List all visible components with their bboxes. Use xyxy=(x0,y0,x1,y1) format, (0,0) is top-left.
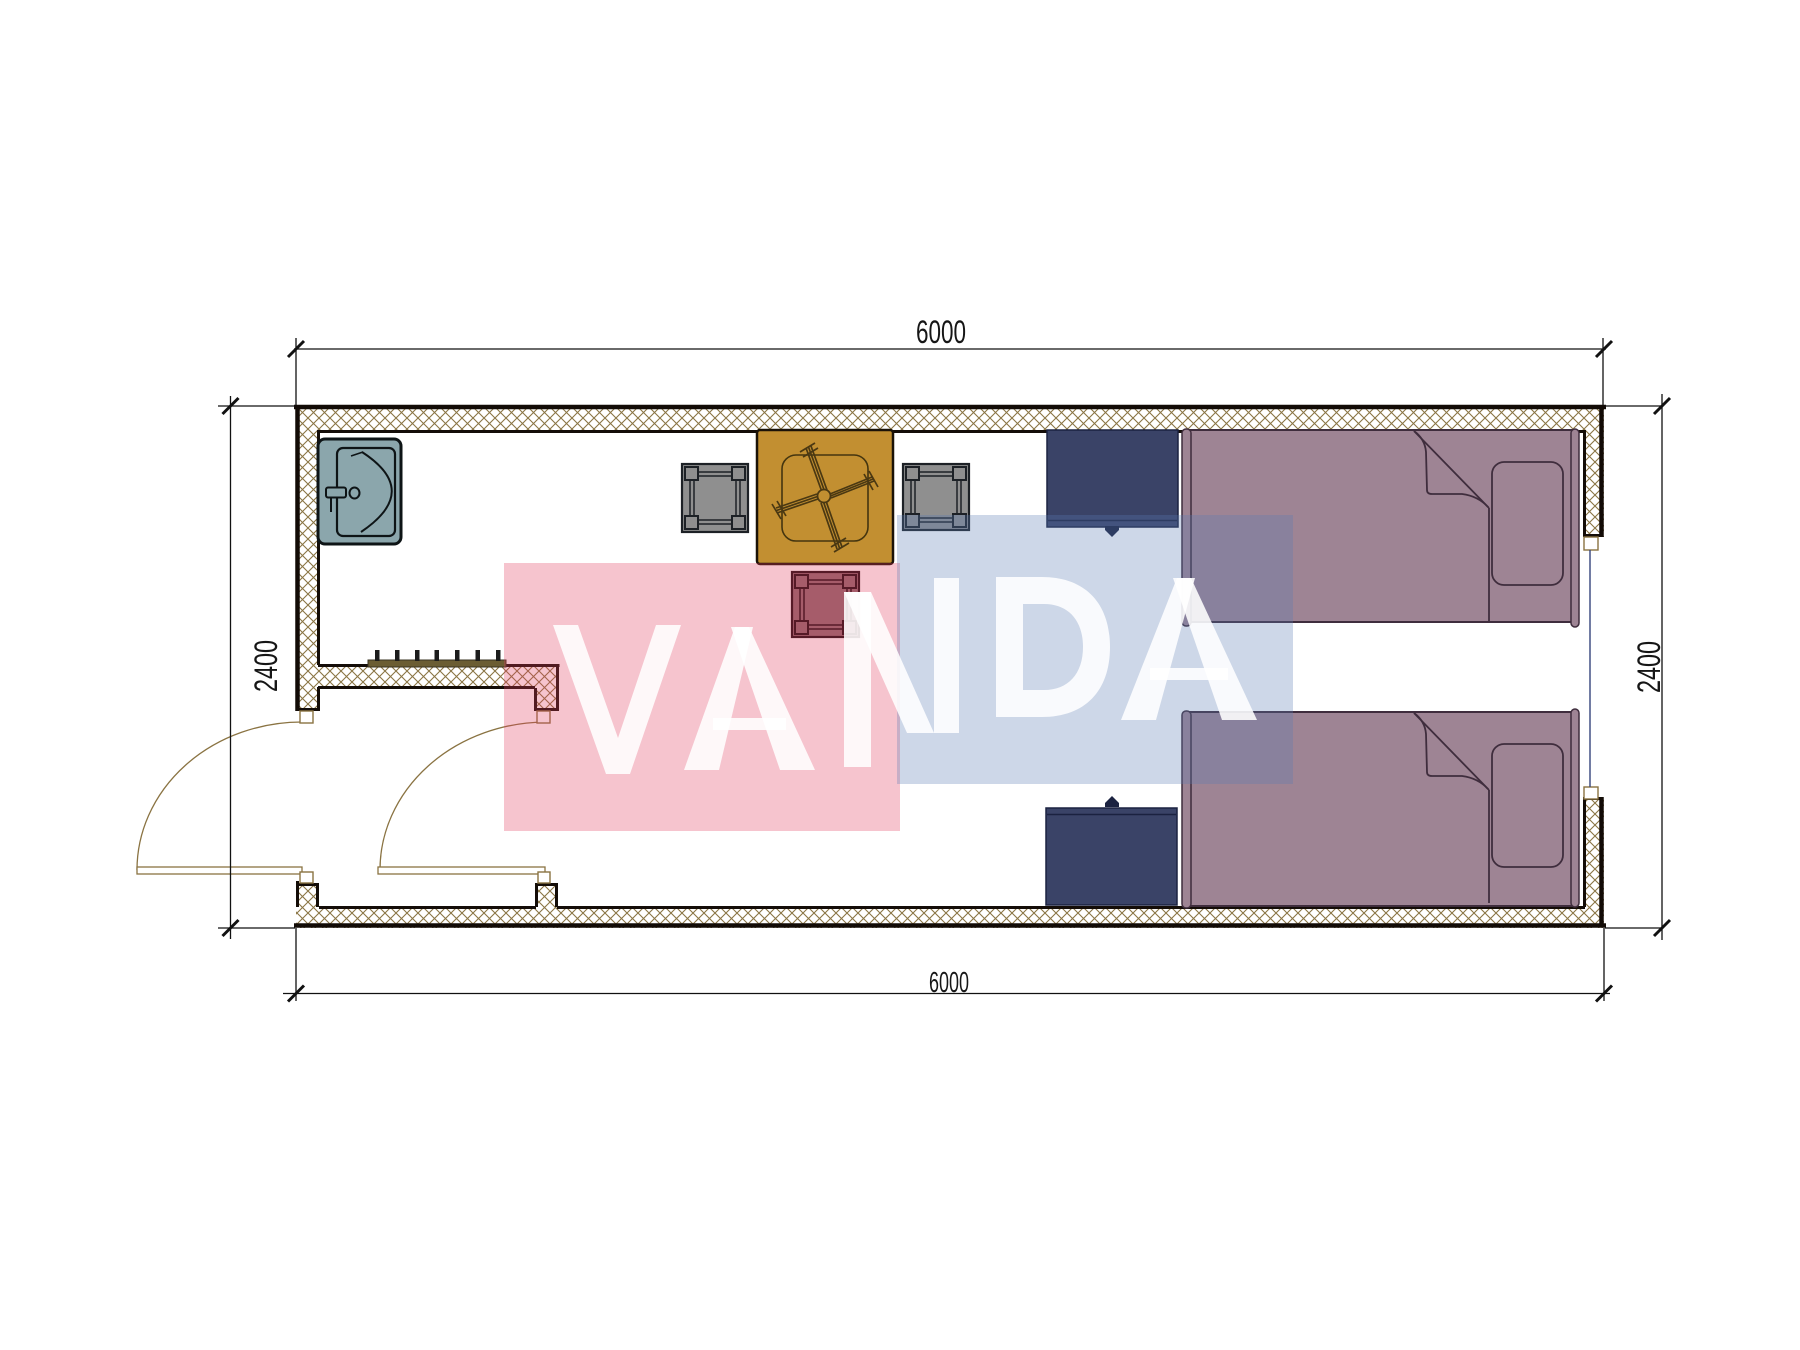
svg-text:2400: 2400 xyxy=(248,640,284,692)
svg-text:2400: 2400 xyxy=(1631,641,1667,693)
svg-text:6000: 6000 xyxy=(916,314,966,350)
svg-text:6000: 6000 xyxy=(929,967,969,999)
